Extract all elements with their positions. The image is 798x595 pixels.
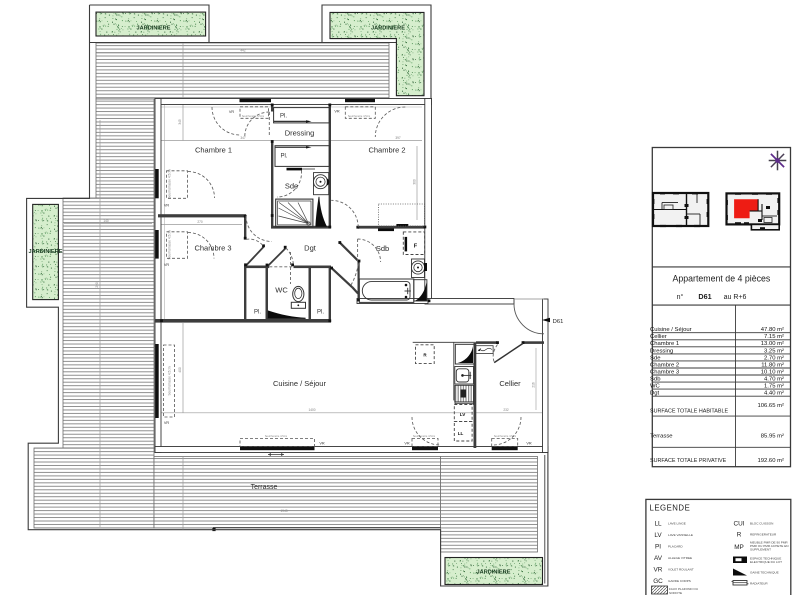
svg-text:JARDINIERE: JARDINIERE	[29, 249, 63, 255]
svg-text:47.80 m²: 47.80 m²	[761, 327, 784, 333]
svg-text:Dgt: Dgt	[650, 391, 660, 397]
svg-text:ELECTRIQUE DU LOT: ELECTRIQUE DU LOT	[750, 560, 782, 564]
svg-text:Chambre 1: Chambre 1	[195, 145, 232, 154]
svg-text:192.60 m²: 192.60 m²	[757, 458, 784, 464]
svg-text:140: 140	[103, 219, 109, 223]
svg-text:Appartement de 4 pièces: Appartement de 4 pièces	[672, 274, 770, 284]
svg-text:345: 345	[178, 119, 182, 125]
svg-text:Seuil fenetre 4.5cm: Seuil fenetre 4.5cm	[265, 434, 287, 438]
svg-text:RADIATEUR: RADIATEUR	[750, 582, 768, 586]
svg-text:MP: MP	[734, 544, 744, 551]
svg-text:Chambre 1: Chambre 1	[650, 341, 679, 347]
svg-text:Pl.: Pl.	[280, 114, 287, 120]
svg-text:1943: 1943	[280, 509, 287, 513]
svg-text:13.00 m²: 13.00 m²	[761, 341, 784, 347]
svg-text:4.40 m²: 4.40 m²	[764, 391, 784, 397]
svg-text:F: F	[414, 244, 418, 250]
svg-text:85.95 m²: 85.95 m²	[761, 434, 784, 440]
svg-text:VR: VR	[164, 421, 170, 425]
svg-text:Sdb: Sdb	[376, 244, 389, 253]
svg-text:Cuisine / Séjour: Cuisine / Séjour	[650, 327, 692, 333]
svg-text:AV: AV	[654, 555, 663, 562]
svg-text:au R+6: au R+6	[724, 294, 747, 301]
svg-text:Dressing: Dressing	[650, 348, 673, 354]
svg-text:Chambre 2: Chambre 2	[368, 145, 405, 154]
svg-text:LL: LL	[458, 431, 464, 436]
svg-text:SOFFITE: SOFFITE	[669, 591, 682, 595]
svg-text:VR: VR	[164, 263, 170, 267]
svg-text:VR: VR	[404, 441, 410, 445]
svg-text:BLOC CUISSON: BLOC CUISSON	[750, 522, 773, 526]
svg-text:347: 347	[240, 136, 246, 140]
svg-text:VR: VR	[229, 110, 235, 114]
svg-text:WC: WC	[275, 286, 288, 295]
svg-text:WC: WC	[650, 384, 661, 390]
svg-text:442: 442	[240, 49, 246, 53]
svg-text:Pl.: Pl.	[317, 310, 324, 316]
svg-text:7.15 m²: 7.15 m²	[764, 334, 784, 340]
svg-text:1.75 m²: 1.75 m²	[764, 384, 784, 390]
svg-text:Seuil terrasse 4.5cm: Seuil terrasse 4.5cm	[168, 230, 172, 259]
svg-text:2.70 m²: 2.70 m²	[764, 355, 784, 361]
svg-text:VR: VR	[334, 110, 340, 114]
svg-text:Chambre 2: Chambre 2	[650, 362, 679, 368]
svg-text:Terrasse: Terrasse	[251, 484, 278, 491]
svg-text:216: 216	[532, 382, 536, 388]
svg-text:Sdb: Sdb	[650, 377, 661, 383]
svg-text:Dressing: Dressing	[285, 129, 315, 138]
svg-text:SURFACE TOTALE HABITABLE: SURFACE TOTALE HABITABLE	[650, 409, 728, 415]
svg-text:SURFACE TOTALE PRIVATIVE: SURFACE TOTALE PRIVATIVE	[650, 458, 727, 464]
svg-text:JARDINIERE: JARDINIERE	[137, 26, 171, 32]
svg-text:LV: LV	[654, 532, 662, 539]
svg-text:LL: LL	[654, 521, 662, 528]
svg-text:Terrasse: Terrasse	[650, 434, 673, 440]
svg-text:11.80 m²: 11.80 m²	[761, 362, 784, 368]
svg-text:REFRIGERATEUR: REFRIGERATEUR	[750, 533, 777, 537]
svg-text:D61: D61	[553, 319, 564, 325]
svg-text:VOLET ROULANT: VOLET ROULANT	[668, 568, 694, 572]
svg-text:Chambre 3: Chambre 3	[650, 369, 680, 375]
svg-text:Cuisine / Séjour: Cuisine / Séjour	[273, 379, 326, 388]
svg-text:D61: D61	[698, 292, 711, 301]
svg-text:SUPPLEMENT: SUPPLEMENT	[750, 548, 771, 552]
svg-text:Seuil fenetre 4.5cm: Seuil fenetre 4.5cm	[348, 114, 370, 118]
svg-text:232: 232	[503, 408, 509, 412]
svg-text:VR: VR	[164, 204, 170, 208]
svg-text:GAINE TECHNIQUE: GAINE TECHNIQUE	[750, 571, 779, 575]
svg-text:PLACARD: PLACARD	[668, 545, 683, 549]
svg-text:Cellier: Cellier	[499, 379, 521, 388]
svg-text:Pl.: Pl.	[280, 154, 287, 160]
svg-text:JARDINIERE: JARDINIERE	[371, 26, 405, 32]
svg-text:VR: VR	[526, 441, 532, 445]
svg-text:106.65 m²: 106.65 m²	[757, 403, 784, 409]
svg-text:VR: VR	[319, 441, 325, 445]
svg-text:ALLEGE VITREE: ALLEGE VITREE	[668, 556, 692, 560]
svg-text:Seuil terrasse 4.5cm: Seuil terrasse 4.5cm	[168, 366, 172, 395]
svg-text:Seuil terrasse 4.5cm: Seuil terrasse 4.5cm	[168, 169, 172, 198]
svg-text:10.10 m²: 10.10 m²	[761, 369, 784, 375]
svg-text:R: R	[423, 353, 427, 358]
svg-text:3.25 m²: 3.25 m²	[764, 348, 784, 354]
svg-text:Chambre 3: Chambre 3	[194, 244, 231, 253]
svg-text:GARDE CORPS: GARDE CORPS	[668, 579, 691, 583]
svg-text:397: 397	[395, 136, 401, 140]
svg-text:290: 290	[95, 282, 99, 288]
svg-text:Dgt: Dgt	[304, 244, 317, 253]
svg-text:Seuil fenetre 4.5cm: Seuil fenetre 4.5cm	[242, 114, 264, 118]
svg-text:Sde: Sde	[650, 355, 661, 361]
svg-text:R: R	[737, 532, 742, 539]
svg-text:Sde: Sde	[285, 182, 298, 191]
svg-text:LAVE VAISSELLE: LAVE VAISSELLE	[668, 533, 693, 537]
svg-text:270: 270	[197, 220, 203, 224]
svg-text:1400: 1400	[308, 408, 315, 412]
svg-text:PI: PI	[655, 544, 661, 551]
svg-text:n°: n°	[677, 293, 684, 301]
svg-text:300: 300	[413, 179, 417, 185]
svg-text:Pl.: Pl.	[254, 310, 261, 316]
svg-text:400: 400	[178, 367, 182, 373]
svg-text:4.70 m²: 4.70 m²	[764, 377, 784, 383]
svg-text:LAVE LINGE: LAVE LINGE	[668, 522, 686, 526]
svg-text:VR: VR	[654, 567, 663, 574]
svg-text:Seuil fenetre 4.5cm: Seuil fenetre 4.5cm	[413, 434, 435, 438]
svg-text:LV: LV	[460, 412, 466, 417]
svg-text:Cellier: Cellier	[650, 334, 667, 340]
svg-text:GC: GC	[653, 578, 663, 585]
svg-text:LEGENDE: LEGENDE	[650, 504, 691, 513]
svg-text:CUI: CUI	[733, 521, 744, 528]
svg-text:JARDINIERE: JARDINIERE	[477, 570, 511, 576]
